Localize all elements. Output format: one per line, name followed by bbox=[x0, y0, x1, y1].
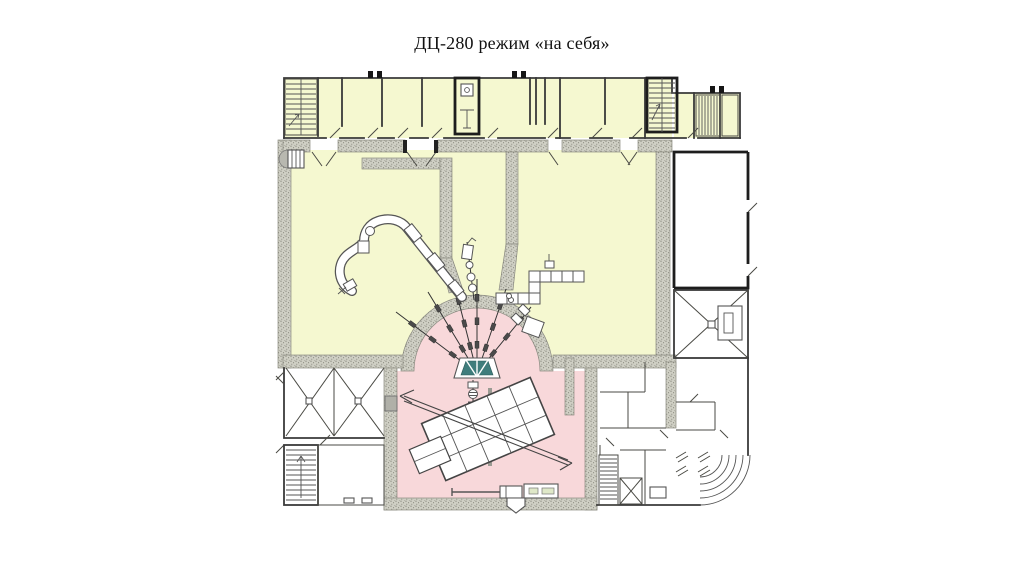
br-cabinet bbox=[650, 487, 666, 498]
elevator bbox=[620, 478, 642, 504]
br-partitions bbox=[600, 362, 715, 505]
funnel-wall-right bbox=[506, 152, 518, 244]
slide: ДЦ-280 режим «на себя» bbox=[0, 0, 1024, 574]
staircase-bottom-left bbox=[284, 445, 318, 505]
left-white-room bbox=[318, 435, 384, 505]
vault-exit-door bbox=[507, 498, 525, 513]
entrance-steps bbox=[700, 455, 750, 505]
top-strip-extension-fill bbox=[674, 93, 740, 138]
staircase-bottom-right bbox=[599, 455, 618, 505]
vault-left-door bbox=[385, 396, 397, 411]
left-service-rooms bbox=[276, 368, 397, 505]
vault-wall-left bbox=[384, 368, 397, 510]
vault-wall-bottom bbox=[384, 498, 597, 510]
right-large-room bbox=[674, 152, 748, 288]
right-crane-room bbox=[674, 290, 748, 358]
vault-wall-right bbox=[585, 368, 597, 510]
floor-plan bbox=[0, 0, 1024, 574]
vault-inner-stub-wall bbox=[565, 358, 574, 415]
switching-magnet bbox=[454, 358, 500, 378]
hall-entrance-fixture bbox=[279, 150, 304, 168]
left-door-marks bbox=[276, 372, 284, 453]
outer-wall-left bbox=[278, 140, 291, 368]
right-service-rooms bbox=[674, 152, 757, 358]
hall-right-wall bbox=[656, 152, 670, 357]
corridor-door-marks bbox=[676, 452, 710, 476]
left-crane-rooms bbox=[286, 368, 384, 436]
funnel-wall-left bbox=[440, 158, 452, 258]
